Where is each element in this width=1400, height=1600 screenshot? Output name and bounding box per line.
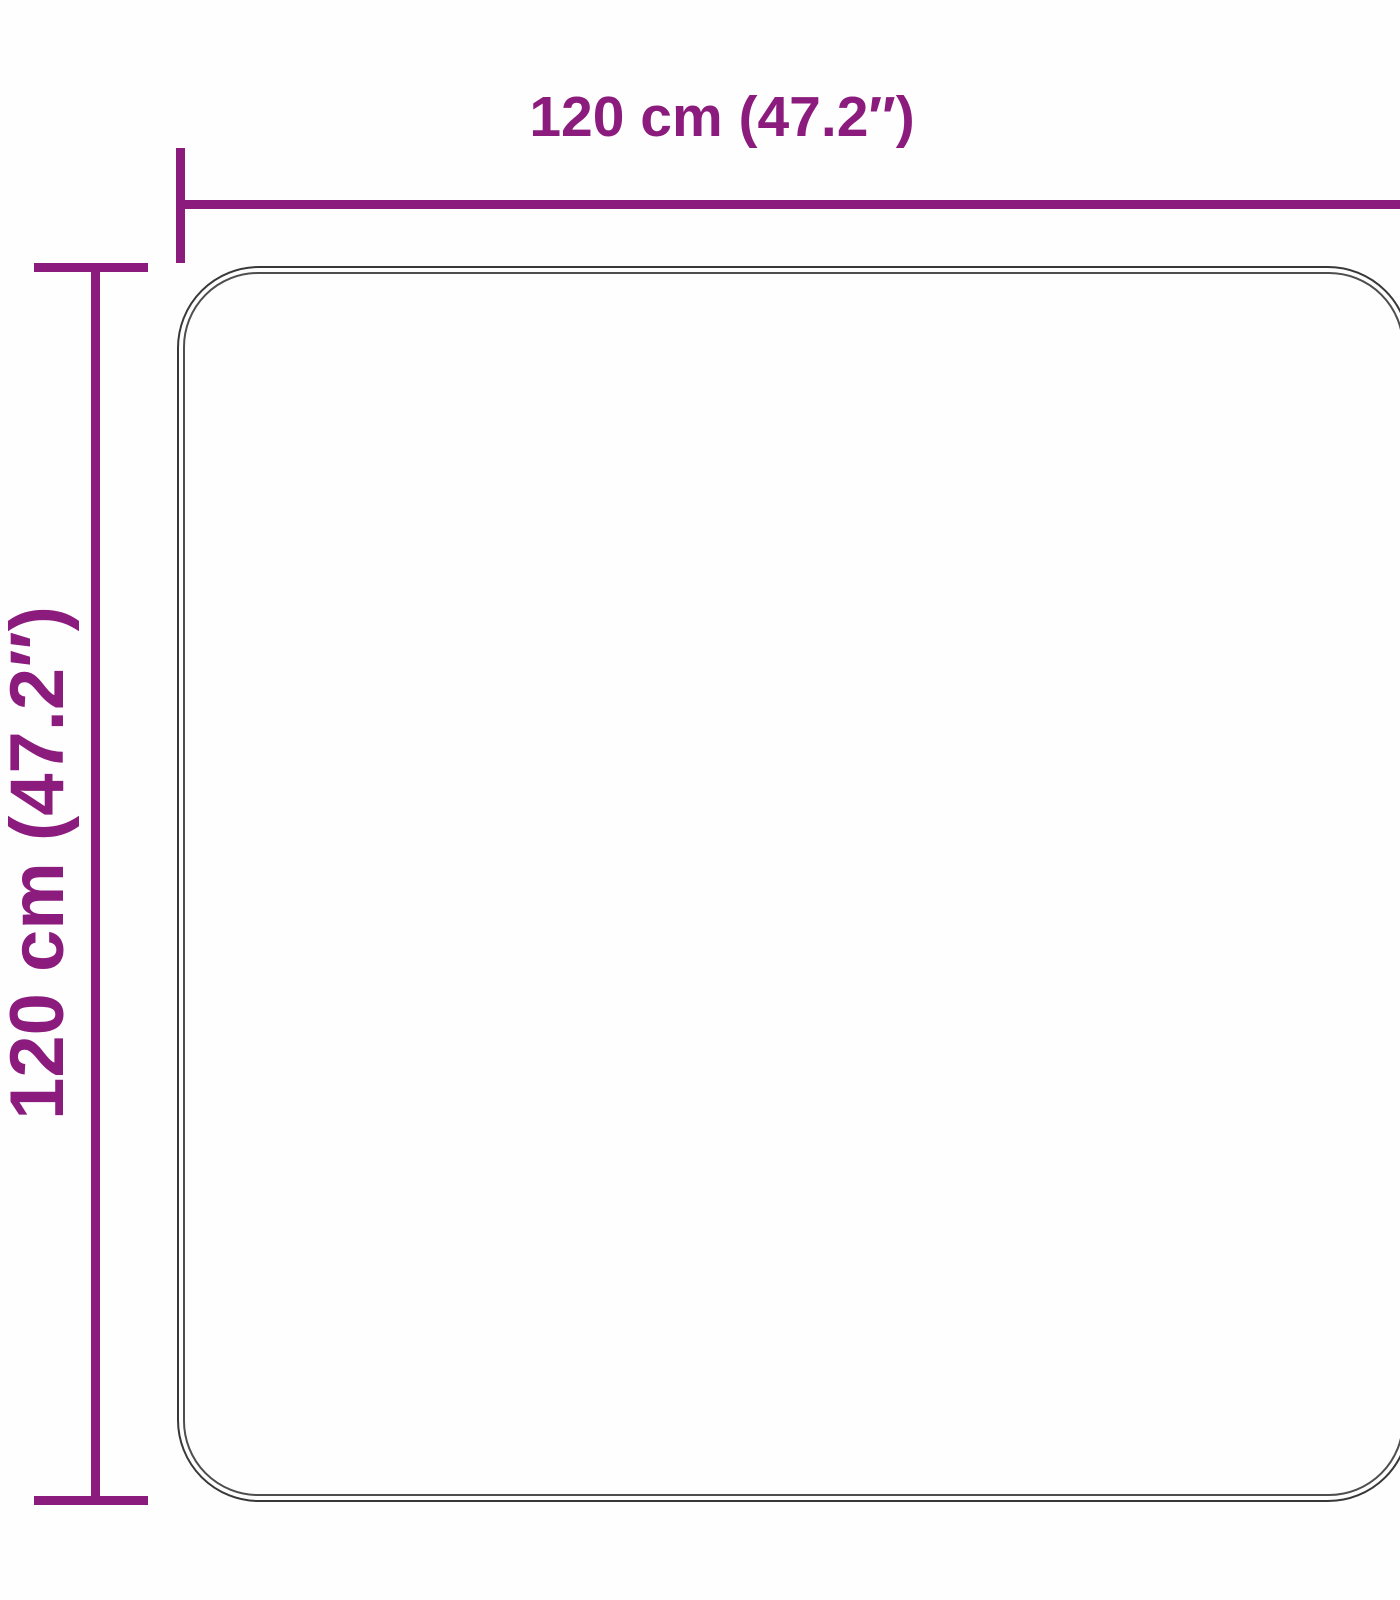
height-dimension-line xyxy=(91,265,100,1505)
height-dimension-tick-top xyxy=(34,263,148,272)
width-dimension-tick-left xyxy=(176,148,185,263)
rug-outline-inner xyxy=(183,272,1400,1496)
width-dimension-label: 120 cm (47.2″) xyxy=(0,87,1400,147)
width-dimension-line xyxy=(176,200,1400,209)
height-dimension-label: 120 cm (47.2″) xyxy=(0,606,78,1120)
height-dimension-tick-bottom xyxy=(34,1496,148,1505)
rug-dimension-diagram: 120 cm (47.2″) 120 cm (47.2″) xyxy=(0,0,1400,1600)
